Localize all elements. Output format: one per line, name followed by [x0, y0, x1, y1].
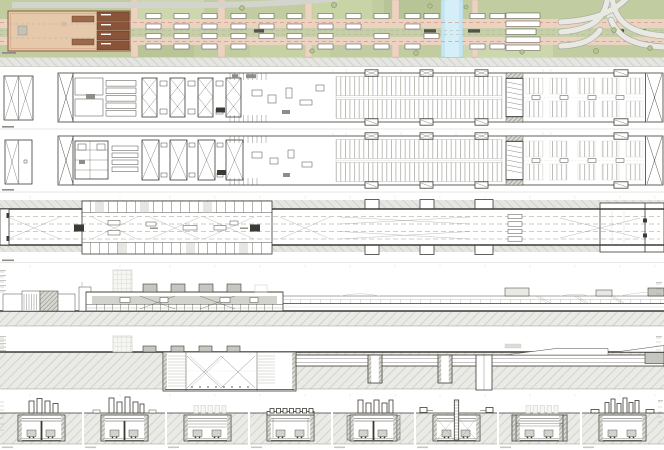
ghost-tower	[113, 270, 132, 292]
dimension-ticks-2	[30, 265, 655, 268]
ghost-tower-2	[113, 336, 132, 352]
skylight-boxes	[143, 284, 241, 292]
site-plan	[0, 0, 664, 57]
longitudinal-section	[0, 336, 664, 397]
cross-section-4	[249, 409, 332, 449]
earth	[0, 311, 664, 326]
cross-section-2	[83, 397, 166, 448]
level-1-caption	[0, 126, 664, 129]
cross-section-5	[332, 400, 415, 448]
dimension-ticks-3	[30, 394, 655, 397]
surface-skylights	[143, 346, 240, 352]
cross-section-3	[166, 406, 249, 449]
level-minus-1-plan	[0, 69, 664, 129]
cross-section-6	[415, 400, 498, 448]
cross-section-7	[498, 406, 581, 449]
station-building-roof	[8, 11, 130, 51]
platform-level-plan	[0, 200, 664, 263]
cross-sections	[0, 397, 664, 448]
ramp-bars	[506, 13, 540, 51]
cross-section-8	[581, 398, 664, 448]
dimension-ticks-1	[30, 196, 655, 199]
cross-section-1	[0, 399, 83, 449]
platform-caption	[0, 260, 664, 263]
west-pavilion-plan-2	[5, 140, 32, 184]
drawing-sheet	[0, 0, 664, 450]
longitudinal-elevation	[0, 270, 664, 326]
level-2-caption	[0, 189, 664, 192]
west-pavilion-plan	[4, 76, 33, 120]
vehicle-icon-2	[217, 170, 226, 175]
ground-band	[0, 58, 664, 67]
west-annex-elevation	[3, 282, 91, 311]
station-section	[163, 352, 296, 391]
level-minus-2-plan	[0, 132, 664, 192]
ramp-wedge-2	[616, 346, 664, 353]
canal	[441, 0, 463, 57]
site-plan-label	[2, 52, 16, 54]
east-deck-elevation	[283, 288, 664, 307]
vehicle-icon	[216, 108, 225, 113]
